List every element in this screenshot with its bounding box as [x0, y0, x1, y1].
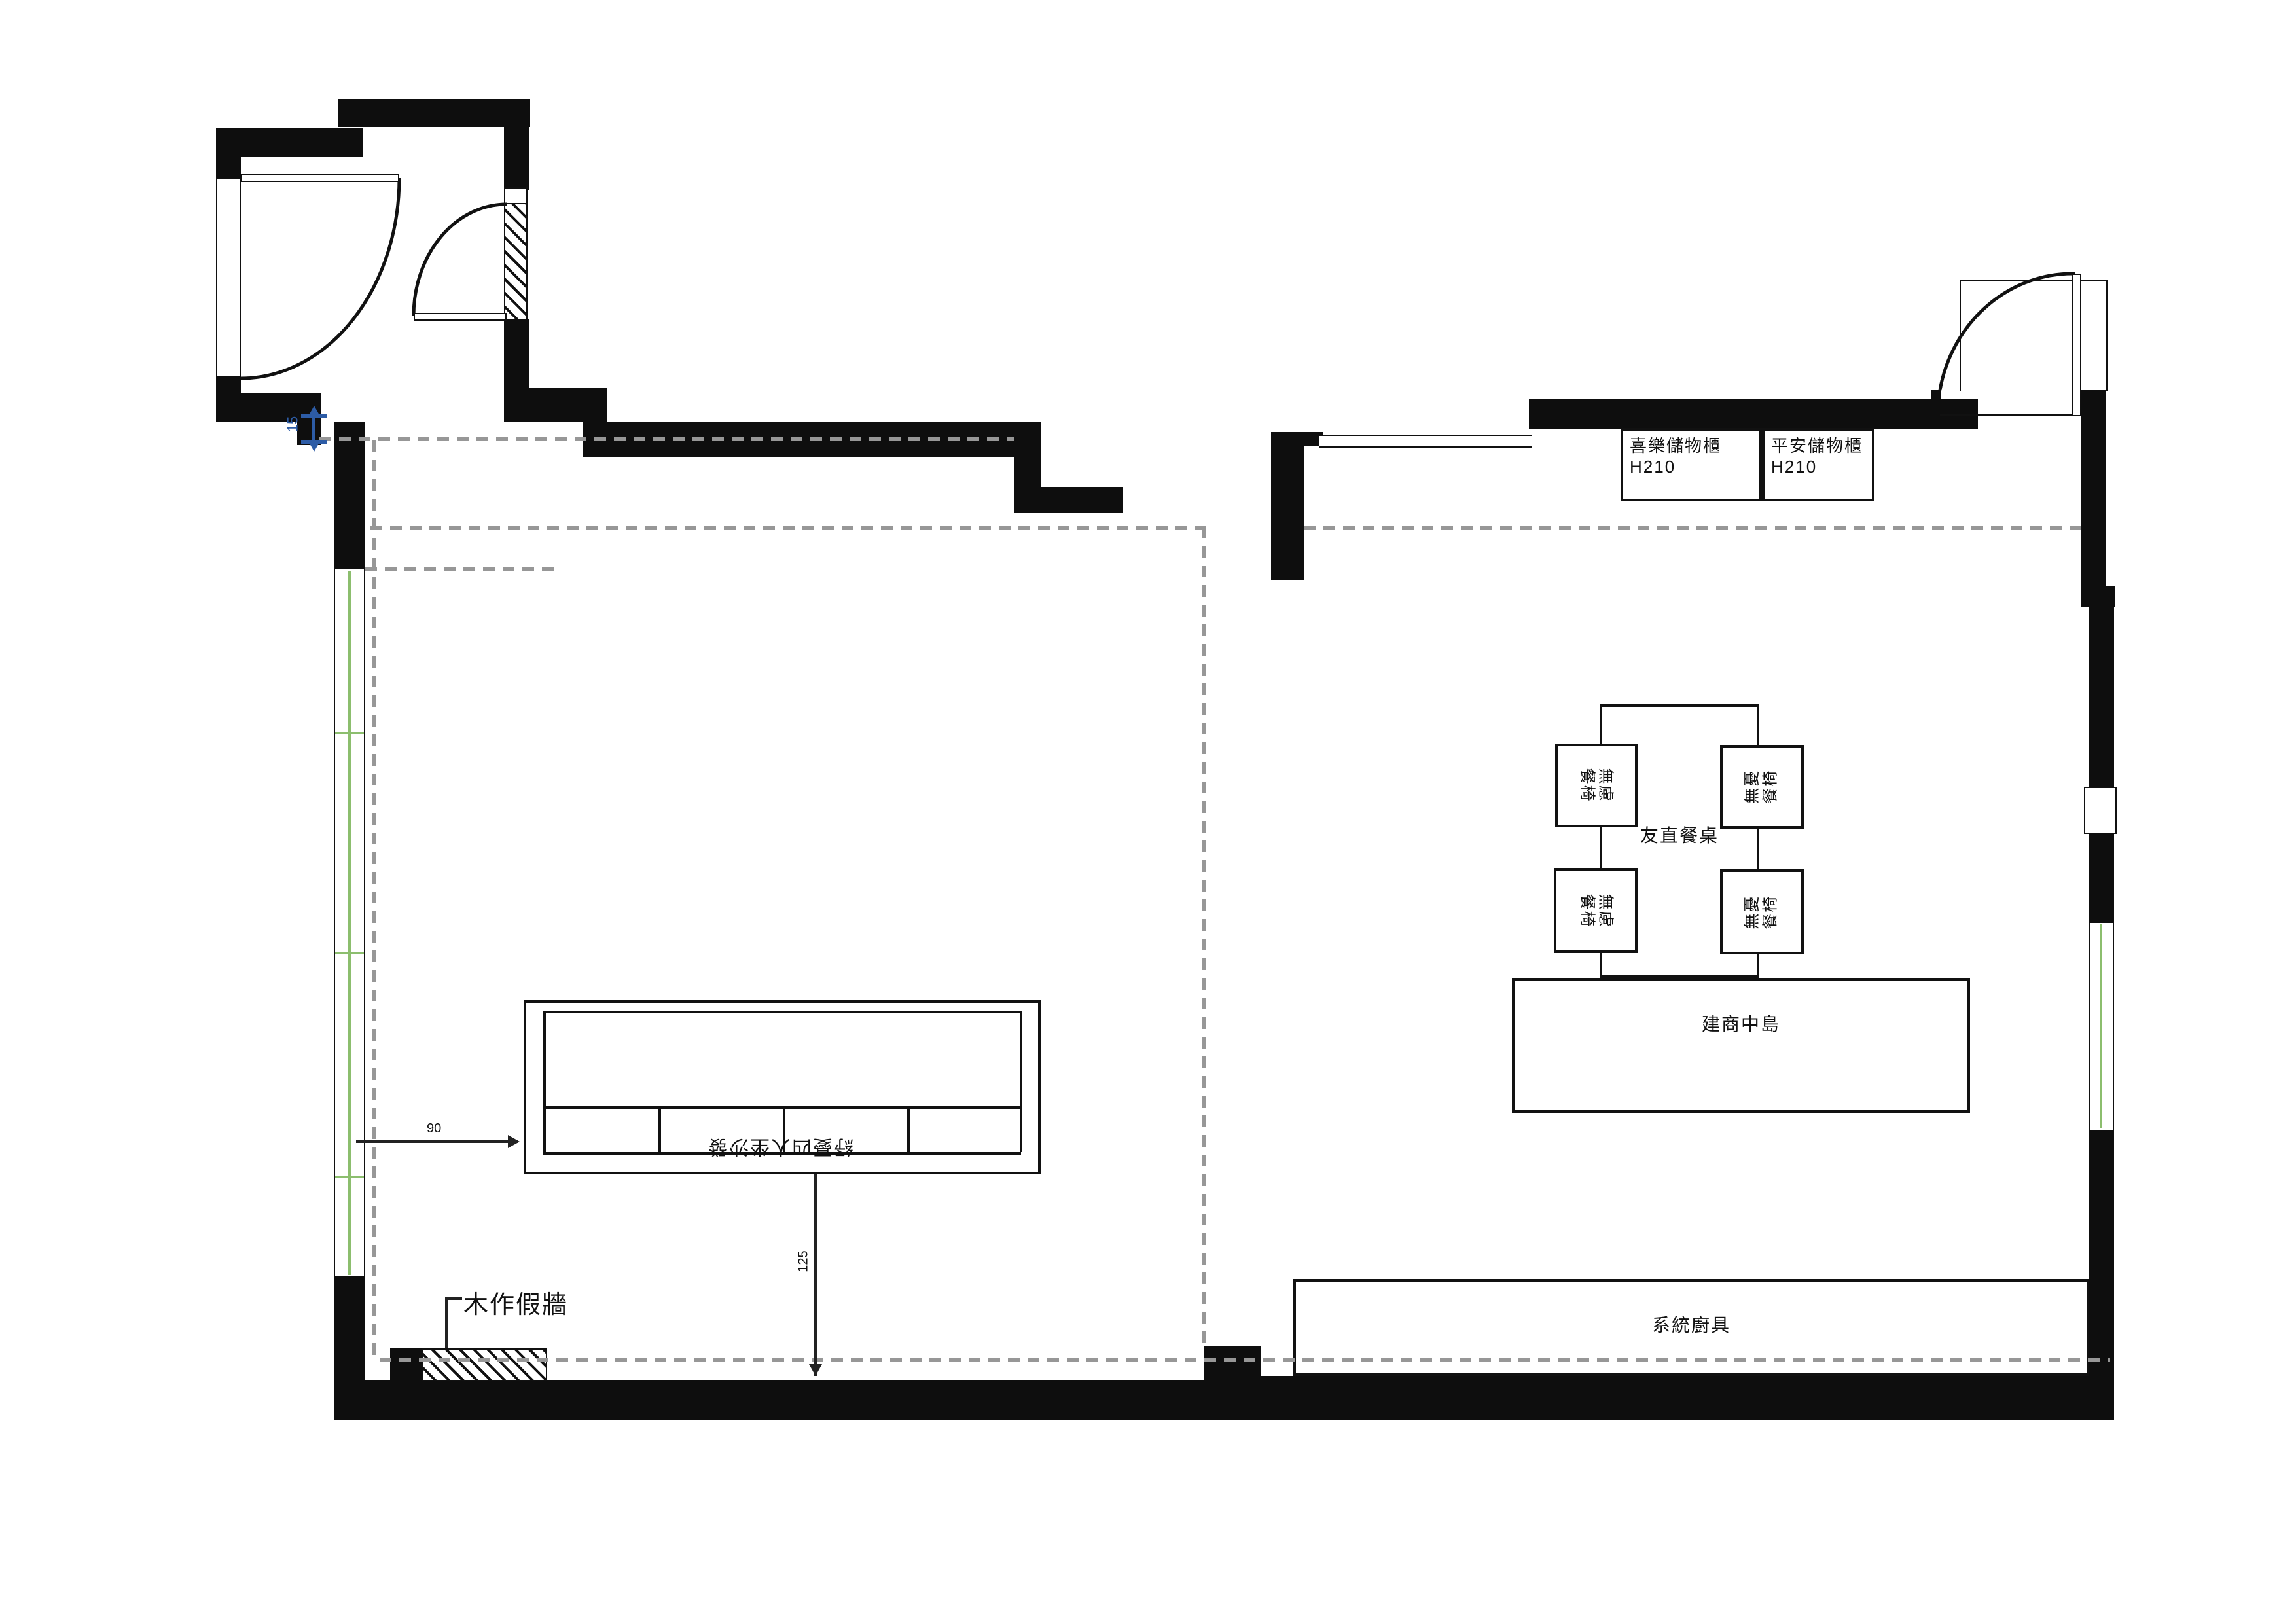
entry2-door-leaf: [2072, 274, 2081, 416]
dim-90-arrowhead: [508, 1135, 520, 1148]
dim-90-line: [356, 1140, 518, 1143]
entry2-door-arc: [1940, 274, 2075, 390]
dim-15-arrow-down: [309, 442, 319, 452]
dim-90-text: 90: [427, 1122, 441, 1136]
dashed-line-h2-dining: [1304, 526, 2089, 530]
kitchen-counter-label: 系統廚具: [1293, 1312, 2089, 1338]
dining-table-label: 友直餐桌: [1600, 822, 1759, 848]
kitchen-island-label: 建商中島: [1512, 1011, 1970, 1037]
sofa-label: 紓憂四人坐沙發: [707, 1134, 853, 1161]
vestibule-door-arc: [414, 204, 507, 316]
dashed-line-h2-living: [370, 526, 1202, 530]
dashed-line-h3-short: [365, 567, 562, 571]
entry-door-leaf: [241, 174, 399, 182]
dim-15-text: 15: [285, 416, 301, 433]
dim-125-text: 125: [797, 1250, 812, 1272]
vestibule-door-leaf: [414, 313, 507, 321]
floor-plan-canvas: 喜樂儲物櫃 H210 平安儲物櫃 H210 友直餐桌 無慮餐椅 無憂餐椅 無慮餐…: [0, 0, 2296, 1623]
dashed-line-bottom: [380, 1358, 2110, 1362]
door-swing-arcs: [0, 0, 2296, 1623]
dashed-line-v-left: [372, 440, 376, 1359]
false-wall-leader-v: [445, 1297, 448, 1348]
dim-15-arrow-up: [309, 406, 319, 415]
dim-125-line: [814, 1174, 817, 1376]
dim-15-line: [312, 414, 315, 444]
dim-125-arrowhead: [809, 1364, 822, 1376]
entry-door-arc: [241, 178, 399, 378]
false-wall-label: 木作假牆: [463, 1286, 568, 1321]
dashed-line-h1: [319, 437, 1014, 441]
dashed-line-v-divider: [1202, 526, 1206, 1346]
